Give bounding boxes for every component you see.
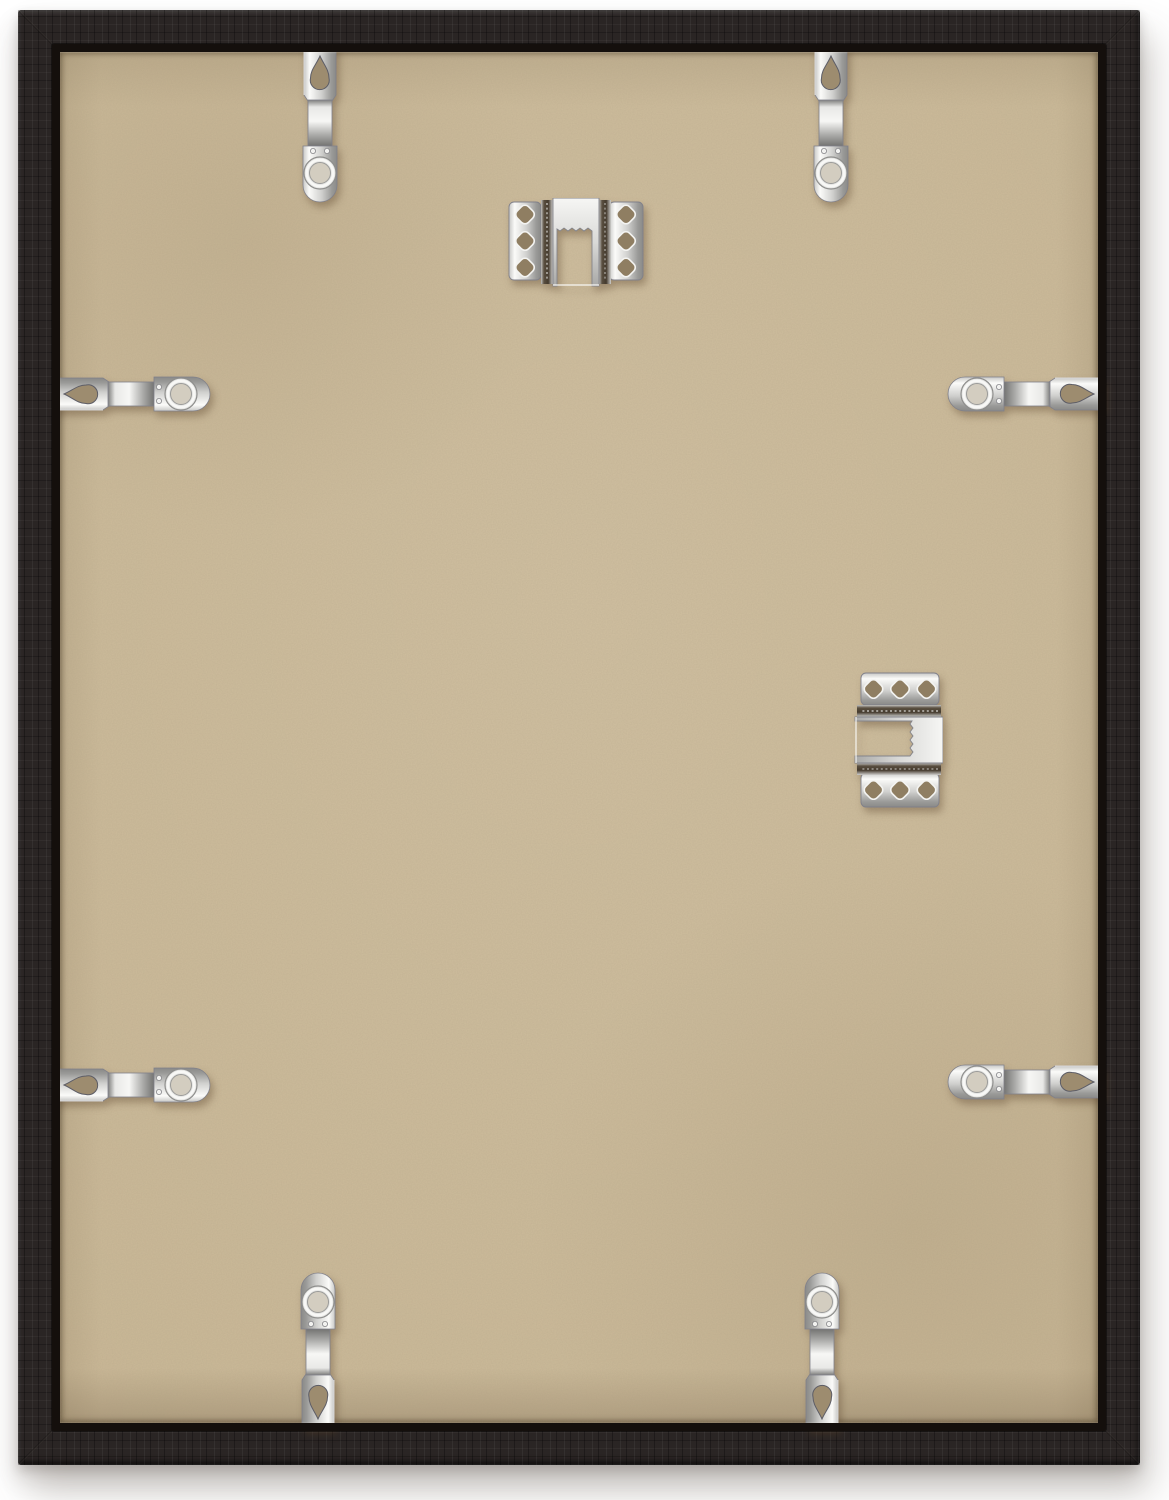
press-ring-center [812,1292,833,1313]
flex-clip-top-left [296,45,344,207]
press-ring-center [171,1075,192,1096]
clip-spring-bend [308,100,332,147]
press-ring-center [967,384,988,405]
hanger-sawtooth-channel [553,198,599,286]
press-ring-center [967,1072,988,1093]
rivet-dot [156,398,161,403]
flex-clip-bottom-left [294,1268,342,1430]
flex-clip-left-upper [110,313,158,475]
press-ring-center [171,384,192,405]
clip-spring-bend [819,100,843,147]
clip-spring-bend [306,1328,330,1375]
rivet-dot [996,398,1001,403]
hardware-layer [18,10,1140,1465]
rivet-dot [324,148,329,153]
rivet-dot [156,384,161,389]
rivet-dot [826,1321,831,1326]
rivet-dot [821,148,826,153]
hanger-sawtooth-channel [855,717,943,763]
sawtooth-hanger-top-center [508,198,644,288]
clip-spring-bend [1003,1070,1050,1094]
clip-spring-bend [810,1328,834,1375]
product-photo-frame-back [0,0,1169,1500]
rivet-dot [812,1321,817,1326]
rivet-dot [156,1075,161,1080]
flex-clip-bottom-right [798,1268,846,1430]
flex-clip-right-upper [1000,313,1048,475]
frame-moulding [18,10,1140,1465]
rivet-dot [996,1072,1001,1077]
rivet-dot [156,1089,161,1094]
sawtooth-hanger-middle-right [830,695,966,785]
clip-spring-bend [1003,382,1050,406]
clip-spring-bend [108,1073,155,1097]
press-ring-center [308,1292,329,1313]
rivet-dot [322,1321,327,1326]
flex-clip-left-lower [110,1004,158,1166]
rivet-dot [308,1321,313,1326]
clip-spring-bend [108,382,155,406]
press-ring-center [310,163,331,184]
flex-clip-right-lower [1000,1001,1048,1163]
flex-clip-top-right [807,45,855,207]
rivet-dot [835,148,840,153]
rivet-dot [310,148,315,153]
rivet-dot [996,384,1001,389]
press-ring-center [821,163,842,184]
rivet-dot [996,1086,1001,1091]
